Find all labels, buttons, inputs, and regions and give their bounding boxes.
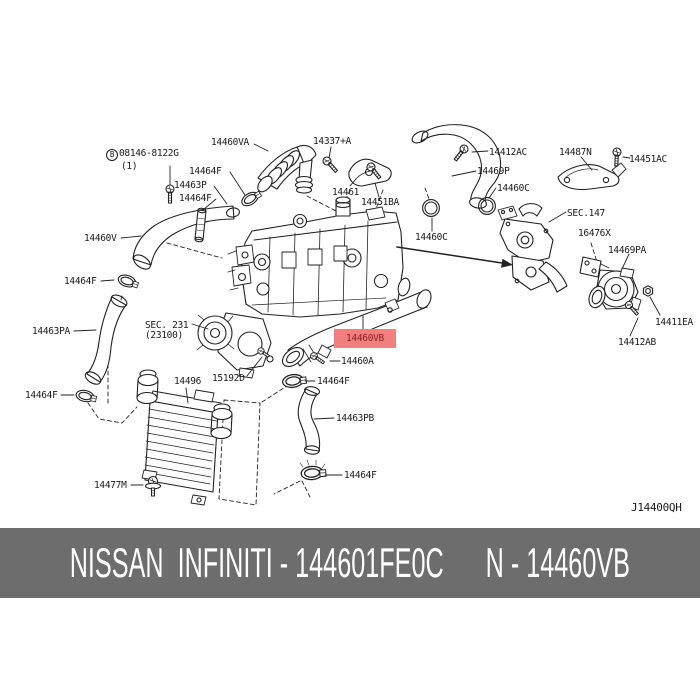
part-label-16476x: 16476X [578,228,611,239]
hose-14460v-drawing [131,206,240,272]
part-label-sec231-code: (23100) [145,330,183,341]
highlighted-part-label-14460vb: 14460VB [334,329,396,348]
part-label-14463p: 14463P [174,180,207,191]
parts-diagram-drawing [0,0,700,528]
part-label-14412ab: 14412AB [618,337,656,348]
part-label-14464f-6: 14464F [344,470,377,481]
part-label-14451ac: 14451AC [629,154,667,165]
part-label-14460c-1: 14460C [497,183,530,194]
part-label-14411ea: 14411EA [655,317,693,328]
part-label-15192d: 15192D [212,373,245,384]
part-label-14412ac: 14412AC [489,147,527,158]
parts-diagram-page: B08146-8122G (1) 14460VA 14337+A 14464F … [0,0,700,700]
part-label-14464f-2: 14464F [179,193,212,204]
part-label-14460v: 14460V [84,233,117,244]
egr-sec147-drawing [498,204,567,292]
part-label-14451ba: 14451BA [361,197,399,208]
part-label-14463pa: 14463PA [32,326,70,337]
part-label-14469p: 14469P [477,166,510,177]
diagram-ref-code: J14400QH [631,501,682,514]
part-label-14337a: 14337+A [313,136,351,147]
part-label-14469pa: 14469PA [608,245,646,256]
alternator-sec231-drawing [197,313,271,378]
duct-14460va-drawing [255,145,316,194]
part-label-sec147: SEC.147 [567,208,605,219]
bracket-14487n-drawing [558,163,626,190]
direction-arrow [397,247,513,268]
part-label-14460va: 14460VA [211,137,249,148]
part-label-14464f-4: 14464F [317,376,350,387]
part-label-14463pb: 14463PB [336,413,374,424]
part-label-14487n: 14487N [559,147,592,158]
part-label-bolt-ref-qty: (1) [121,161,137,172]
part-label-bolt-ref: B08146-8122G [106,148,179,161]
part-label-14464f-5: 14464F [25,390,58,401]
hose-14463pa-drawing [83,293,129,387]
hose-14463pb-drawing [298,386,320,455]
circled-b-icon: B [106,149,118,161]
part-label-14460a: 14460A [341,356,374,367]
part-label-14460c-2: 14460C [415,232,448,243]
engine-block-drawing [228,197,412,317]
part-number-banner: NISSAN INFINITI - 144601FE0C N - 14460VB [0,528,700,598]
part-label-14464f-3: 14464F [64,276,97,287]
part-label-14464f-1: 14464F [189,166,222,177]
part-label-14461: 14461 [332,187,359,198]
part-label-14477m: 14477M [94,480,127,491]
banner-text: NISSAN INFINITI - 144601FE0C N - 14460VB [70,539,630,587]
part-label-14496: 14496 [174,376,201,387]
